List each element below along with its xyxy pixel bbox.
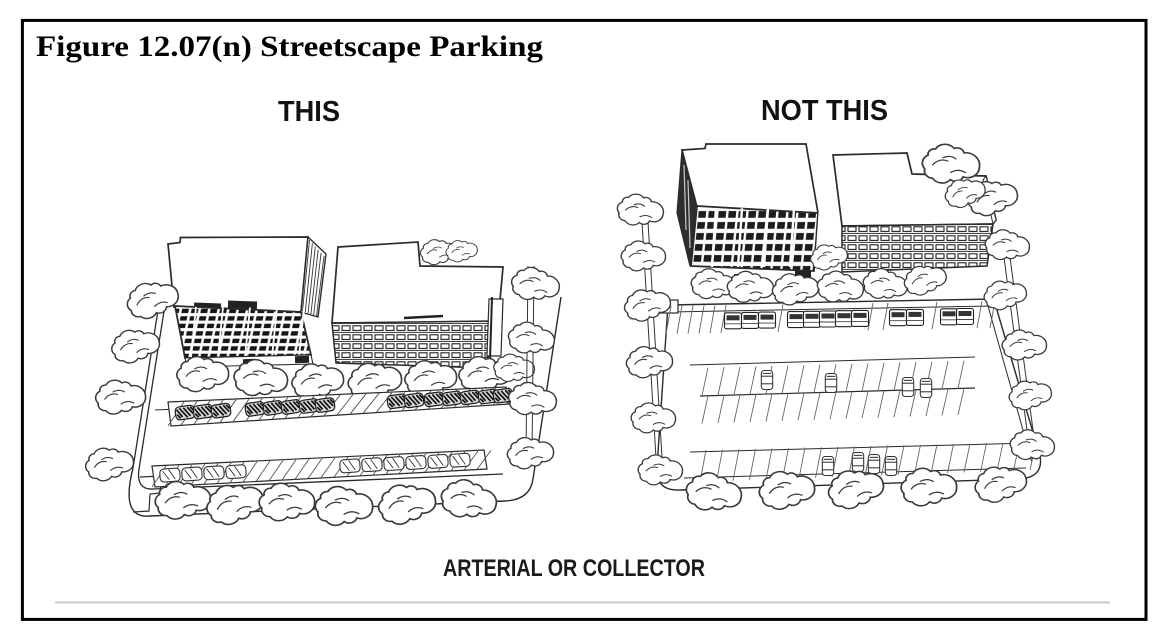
svg-text:Figure 12.07(n) Streetscape Pa: Figure 12.07(n) Streetscape Parking — [36, 30, 543, 63]
svg-text:THIS: THIS — [278, 96, 340, 128]
svg-text:ARTERIAL OR COLLECTOR: ARTERIAL OR COLLECTOR — [443, 555, 705, 582]
svg-text:NOT THIS: NOT THIS — [761, 95, 888, 127]
